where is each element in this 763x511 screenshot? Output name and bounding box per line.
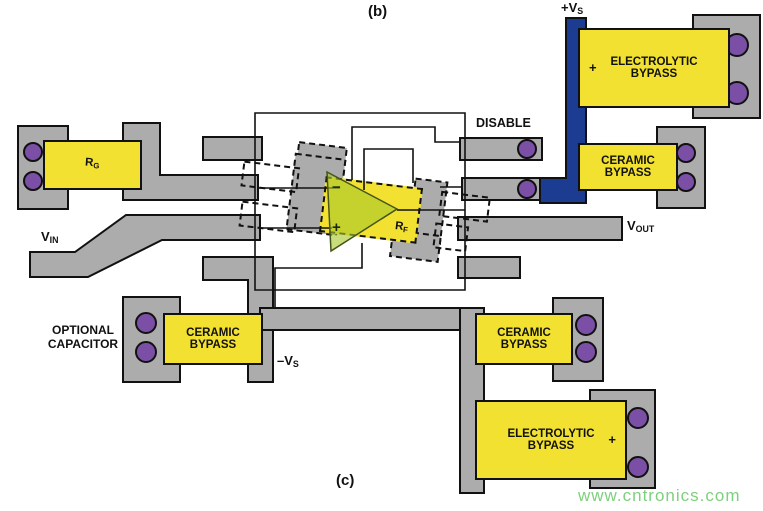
panel-label-b: (b) xyxy=(368,3,387,20)
ceramic-bypass-bottom-left: CERAMICBYPASS xyxy=(163,313,263,365)
rg-label: RG xyxy=(85,157,100,173)
via-ceramic-bottom-right xyxy=(576,315,596,335)
rg-trace xyxy=(123,123,258,200)
via-ceramic-top xyxy=(677,173,695,191)
electrolytic-bypass-bottom: ELECTROLYTICBYPASS + xyxy=(475,400,627,480)
via-ceramic-bottom-right xyxy=(576,342,596,362)
ic-pad-right-4 xyxy=(458,257,520,278)
watermark: www.cntronics.com xyxy=(578,486,740,506)
pos-vs-label: +VS xyxy=(561,0,583,16)
pcb-layout-figure: RG RF + ELECTROLYTICBYPASS CERAMICBYPASS… xyxy=(0,0,763,511)
via-optional-cap xyxy=(136,313,156,333)
polarity-plus: + xyxy=(589,62,597,75)
ceramic-top-right-label: CERAMICBYPASS xyxy=(601,155,655,180)
vout-label: VOUT xyxy=(627,218,654,234)
ceramic-bottom-right-label: CERAMICBYPASS xyxy=(497,327,551,352)
neg-vs-bus-trace xyxy=(260,308,480,330)
polarity-plus: + xyxy=(608,434,616,447)
ic-pad-left-1 xyxy=(203,137,262,160)
opamp-inverting-mark: − xyxy=(332,180,341,195)
via-optional-cap xyxy=(136,342,156,362)
ceramic-bypass-bottom-right: CERAMICBYPASS xyxy=(475,313,573,365)
disable-label: DISABLE xyxy=(476,116,531,130)
via xyxy=(24,143,42,161)
via-electrolytic-bottom xyxy=(628,408,648,428)
neg-vs-label: –VS xyxy=(277,353,299,369)
optional-capacitor-note: OPTIONALCAPACITOR xyxy=(36,324,130,351)
opamp-noninverting-mark: + xyxy=(332,220,341,235)
electrolytic-top-label: ELECTROLYTICBYPASS xyxy=(610,56,697,81)
vin-label: VIN xyxy=(41,229,59,245)
panel-label-c: (c) xyxy=(336,472,354,489)
rf-label: RF xyxy=(394,220,409,237)
via-disable xyxy=(518,140,536,158)
ceramic-bypass-top-right: CERAMICBYPASS xyxy=(578,143,678,191)
via-ceramic-top xyxy=(677,144,695,162)
vout-trace xyxy=(458,217,622,240)
electrolytic-bottom-label: ELECTROLYTICBYPASS xyxy=(507,428,594,453)
electrolytic-bypass-top: + ELECTROLYTICBYPASS xyxy=(578,28,730,108)
ceramic-bottom-left-label: CERAMICBYPASS xyxy=(186,327,240,352)
via xyxy=(518,180,536,198)
rg-resistor: RG xyxy=(43,140,142,190)
via-electrolytic-bottom xyxy=(628,457,648,477)
via xyxy=(24,172,42,190)
